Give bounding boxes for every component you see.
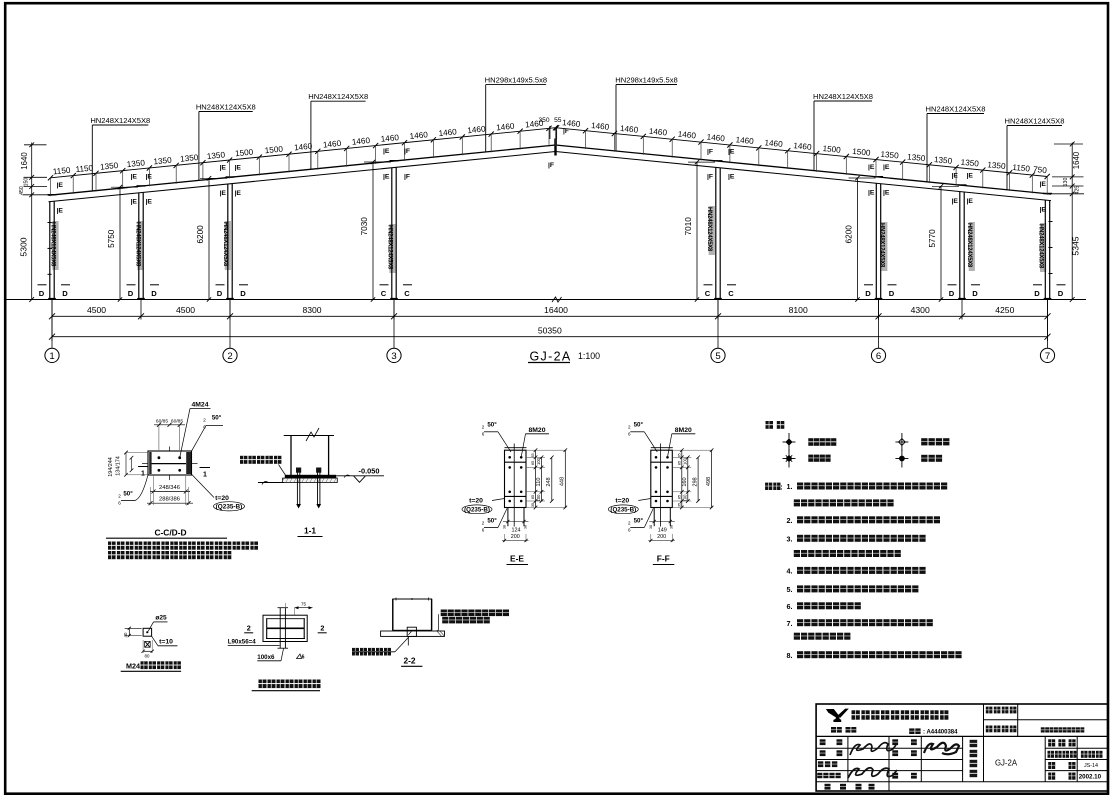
svg-text:35: 35 — [677, 453, 681, 457]
svg-text:35: 35 — [677, 503, 681, 507]
svg-text:38: 38 — [670, 525, 674, 529]
svg-text:85: 85 — [531, 495, 535, 499]
svg-text:C-C/D-D: C-C/D-D — [154, 528, 186, 538]
svg-text:200: 200 — [511, 534, 520, 540]
svg-text:149: 149 — [658, 528, 667, 534]
svg-text:75: 75 — [301, 602, 307, 607]
svg-text:288/386: 288/386 — [159, 497, 180, 503]
svg-text:3.: 3. — [787, 534, 793, 543]
svg-text:(Q235-B): (Q235-B) — [464, 507, 490, 514]
svg-text:100: 100 — [682, 494, 687, 502]
svg-text:248: 248 — [546, 477, 552, 486]
svg-text:85: 85 — [677, 461, 681, 465]
svg-text:2: 2 — [247, 624, 251, 633]
svg-text:100: 100 — [536, 457, 541, 465]
svg-text::: : — [780, 482, 782, 491]
svg-text:2: 2 — [482, 425, 485, 430]
svg-text:1: 1 — [141, 471, 145, 478]
svg-text:40: 40 — [123, 632, 128, 637]
svg-text:6: 6 — [482, 528, 485, 533]
svg-text:2: 2 — [628, 521, 631, 526]
svg-text:t=20: t=20 — [469, 498, 483, 505]
svg-text:2: 2 — [482, 521, 485, 526]
svg-text:7.: 7. — [787, 619, 793, 628]
svg-text:80: 80 — [145, 654, 150, 659]
svg-text:85: 85 — [531, 461, 535, 465]
svg-text:6.: 6. — [787, 602, 793, 611]
svg-text:448: 448 — [560, 477, 566, 486]
svg-text:t=20: t=20 — [215, 495, 229, 502]
svg-text:50°: 50° — [212, 415, 222, 422]
svg-text:298: 298 — [693, 477, 699, 486]
svg-text:194/244: 194/244 — [108, 457, 114, 477]
svg-text:JS-14: JS-14 — [1084, 763, 1098, 769]
svg-text:100: 100 — [536, 494, 541, 502]
svg-text:8M20: 8M20 — [675, 427, 692, 434]
svg-text:GJ-2A: GJ-2A — [995, 758, 1018, 767]
svg-text:50°: 50° — [634, 422, 644, 429]
svg-text:6: 6 — [302, 654, 305, 660]
svg-text:8M20: 8M20 — [528, 427, 545, 434]
svg-text:6: 6 — [628, 432, 631, 437]
svg-text:6: 6 — [118, 501, 121, 506]
svg-text:1.: 1. — [787, 482, 793, 491]
svg-text:2002.10: 2002.10 — [1079, 774, 1102, 781]
svg-text:L90x56=4: L90x56=4 — [228, 638, 257, 645]
svg-text:2: 2 — [118, 494, 121, 499]
svg-text:498: 498 — [706, 477, 712, 486]
svg-text:(Q235-B): (Q235-B) — [216, 504, 243, 511]
svg-text:t=10: t=10 — [159, 639, 173, 646]
svg-text:6: 6 — [628, 528, 631, 533]
svg-text:6: 6 — [482, 432, 485, 437]
svg-text:: A44400384: : A44400384 — [923, 729, 958, 735]
svg-text:60/85: 60/85 — [156, 418, 169, 424]
svg-text:60/85: 60/85 — [171, 418, 184, 424]
svg-text:100: 100 — [682, 457, 687, 465]
svg-text:50°: 50° — [487, 422, 497, 429]
svg-text:M24: M24 — [126, 662, 140, 671]
svg-text:38: 38 — [649, 525, 653, 529]
svg-text:2-2: 2-2 — [403, 655, 415, 665]
svg-text:ø25: ø25 — [155, 615, 167, 622]
svg-text:50°: 50° — [487, 518, 497, 525]
svg-text:2: 2 — [203, 418, 206, 423]
svg-text:110: 110 — [536, 478, 542, 487]
svg-text:50°: 50° — [123, 491, 133, 498]
svg-text:160: 160 — [682, 477, 688, 486]
svg-text:38: 38 — [523, 525, 527, 529]
svg-text:4.: 4. — [787, 567, 793, 576]
svg-text:124: 124 — [512, 528, 521, 534]
svg-text:50°: 50° — [634, 518, 644, 525]
svg-text:E-E: E-E — [510, 554, 524, 564]
svg-text:85: 85 — [677, 495, 681, 499]
svg-text:F-F: F-F — [657, 554, 670, 564]
svg-text:2: 2 — [628, 425, 631, 430]
svg-text:200: 200 — [657, 534, 666, 540]
svg-text:8.: 8. — [787, 651, 793, 660]
svg-text:2.: 2. — [787, 516, 793, 525]
svg-text:38: 38 — [503, 525, 507, 529]
svg-text:100x6: 100x6 — [257, 654, 275, 661]
svg-text:35: 35 — [531, 453, 535, 457]
svg-text:248/346: 248/346 — [159, 485, 180, 491]
svg-text:6: 6 — [203, 425, 206, 430]
svg-text:35: 35 — [531, 503, 535, 507]
svg-text:-0.050: -0.050 — [359, 466, 380, 475]
svg-text:(Q235-B): (Q235-B) — [610, 507, 636, 514]
svg-text:1: 1 — [203, 472, 207, 479]
svg-text:t=20: t=20 — [615, 498, 629, 505]
svg-text:134/174: 134/174 — [115, 456, 121, 476]
svg-text:1-1: 1-1 — [304, 526, 316, 536]
svg-text:4M24: 4M24 — [191, 402, 208, 409]
svg-text:2: 2 — [320, 624, 324, 633]
svg-text:5.: 5. — [787, 585, 793, 594]
